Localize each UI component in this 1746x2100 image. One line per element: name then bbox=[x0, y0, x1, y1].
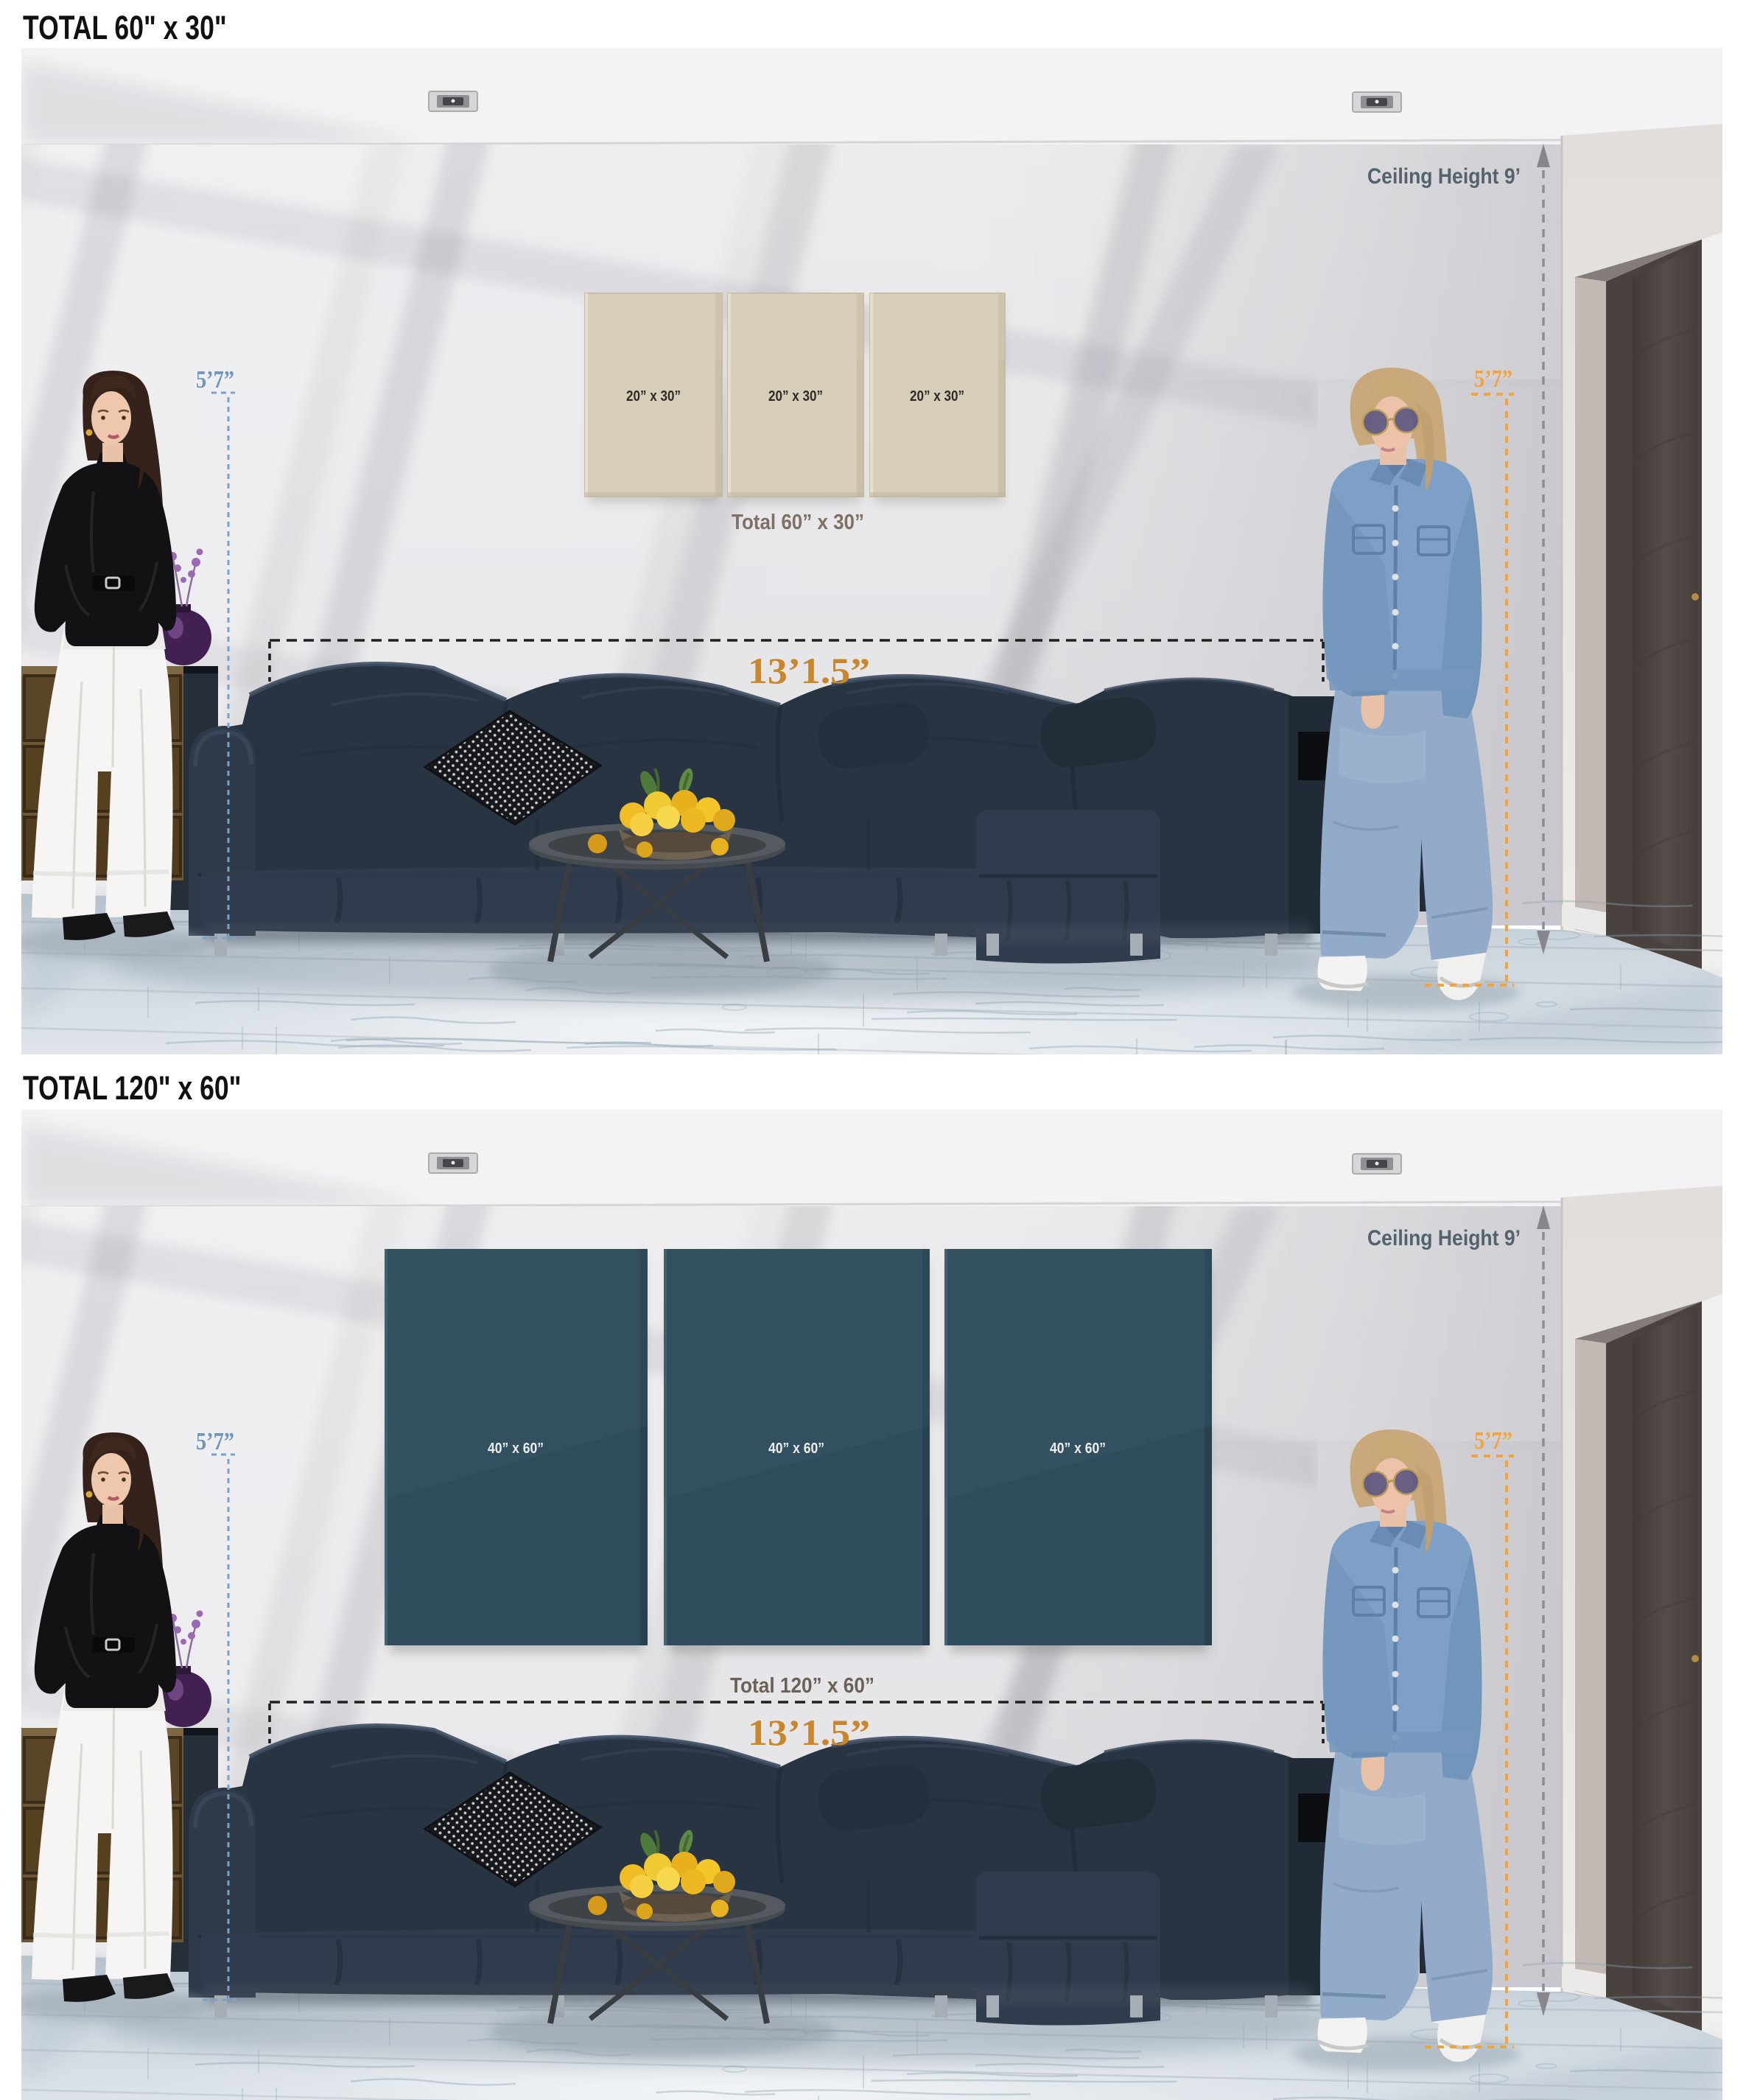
svg-text:Total 120” x 60”: Total 120” x 60” bbox=[730, 1674, 874, 1698]
svg-text:40” x 60”: 40” x 60” bbox=[1050, 1441, 1106, 1457]
svg-text:Total 60” x 30”: Total 60” x 30” bbox=[732, 511, 864, 534]
svg-text:40” x 60”: 40” x 60” bbox=[768, 1441, 824, 1457]
svg-text:20” x 30”: 20” x 30” bbox=[910, 388, 964, 405]
svg-text:40” x 60”: 40” x 60” bbox=[488, 1441, 544, 1457]
svg-text:20” x 30”: 20” x 30” bbox=[768, 388, 823, 405]
svg-text:20” x 30”: 20” x 30” bbox=[626, 388, 681, 405]
